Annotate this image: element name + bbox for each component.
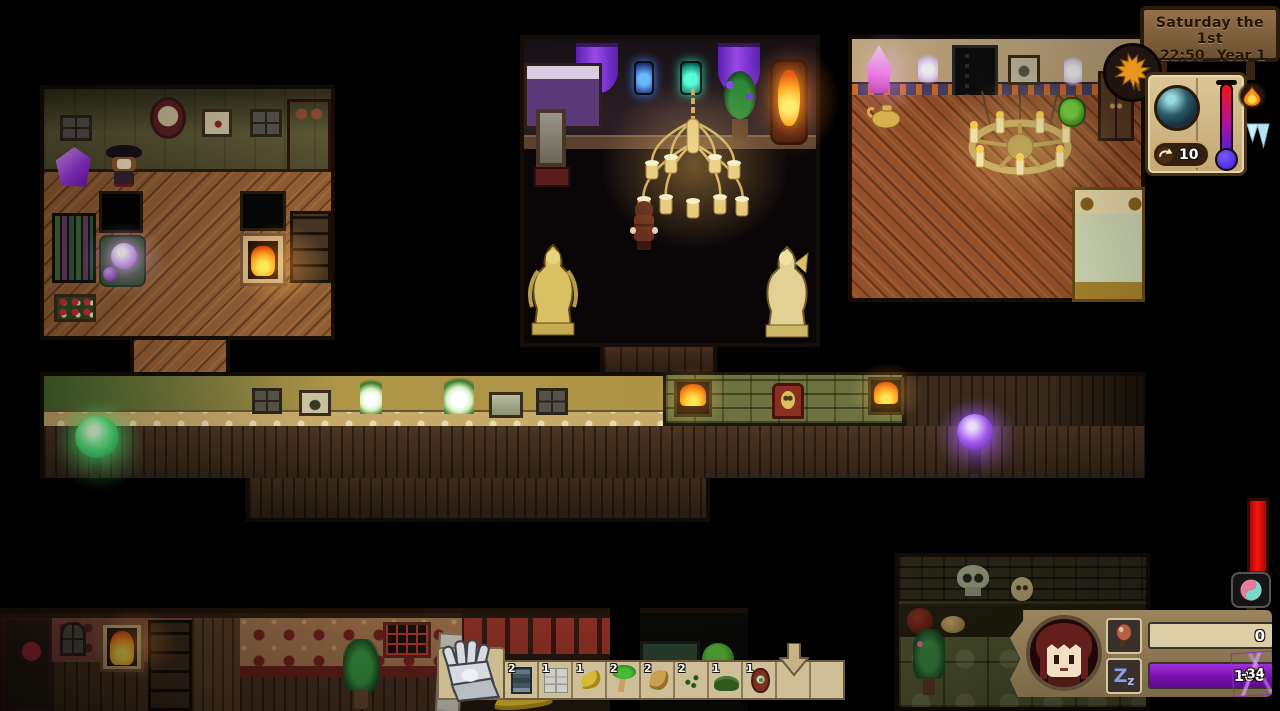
study-window-left xyxy=(60,115,92,141)
purple-orb-lamp[interactable] xyxy=(948,414,1002,478)
fire-flame xyxy=(251,246,275,276)
bird-picture xyxy=(299,390,331,416)
hotbar-slot-8[interactable]: 1 xyxy=(741,662,775,698)
skull-jaw xyxy=(965,587,981,596)
stamina-value: 0 xyxy=(1255,627,1265,645)
player-status-panel: 0 Z z 100 -34 xyxy=(1010,610,1272,697)
game-screen: Saturday the 1st 22:50 Year 1 10 xyxy=(0,0,1280,711)
shrine-mask[interactable] xyxy=(772,383,804,419)
actions-counter-value: 10 xyxy=(1179,147,1198,163)
dark-opening-right xyxy=(240,191,286,231)
date-year: Year 1 xyxy=(1217,48,1266,64)
gauntlet-icon[interactable] xyxy=(438,636,502,702)
study-fireplace[interactable] xyxy=(240,233,286,286)
player-hand-right xyxy=(652,227,658,234)
room-dining xyxy=(848,35,1145,302)
corridor-wall-west xyxy=(40,372,665,426)
player-legs xyxy=(637,241,651,250)
portrait-mouth xyxy=(1060,668,1068,671)
red-lattice-screen xyxy=(383,622,431,658)
cellar-plant-flower xyxy=(917,641,923,647)
stamina-bar: 0 xyxy=(1148,622,1274,649)
room-hall xyxy=(520,35,820,347)
ice-badge xyxy=(1246,122,1270,150)
hotbar-slot-7[interactable]: 1 xyxy=(707,662,741,698)
corridor-window-b xyxy=(536,388,568,415)
night-scene-icon xyxy=(1154,85,1200,131)
icicles-icon xyxy=(1246,122,1270,150)
slot-5-count: 2 xyxy=(644,663,652,674)
hotbar-slot-10[interactable] xyxy=(809,662,843,698)
corridor-frieze xyxy=(44,410,665,426)
npc-dress xyxy=(114,171,134,187)
date-sign: Saturday the 1st 22:50 Year 1 xyxy=(1140,6,1280,62)
green-orb-lamp[interactable] xyxy=(62,416,132,478)
stone-fireplace-2 xyxy=(868,377,904,415)
crystal-ball xyxy=(111,243,137,269)
green-creature[interactable] xyxy=(1058,97,1086,127)
crystal-ball-table[interactable] xyxy=(99,235,146,287)
undo-arrow-icon xyxy=(1156,146,1174,164)
zz-icon-small: z xyxy=(1127,674,1134,688)
thermometer-tube xyxy=(1220,83,1233,155)
gold-bed xyxy=(1072,187,1145,302)
portrait-sidehair-left xyxy=(1040,643,1047,679)
plant-pot xyxy=(354,689,368,709)
shop-fireplace xyxy=(100,622,144,672)
slot-7-count: 1 xyxy=(712,663,720,674)
shop-plank-wall xyxy=(192,618,240,711)
calendar-book[interactable]: 10 xyxy=(1145,72,1247,176)
actions-counter: 10 xyxy=(1152,141,1210,168)
corridor-floor-lower xyxy=(245,478,710,522)
wall-skull xyxy=(951,565,995,599)
landscape-picture xyxy=(489,392,523,418)
spirit-swirl-badge xyxy=(1231,572,1271,608)
stone-fireplace-1 xyxy=(674,379,712,417)
hotbar-slot-6[interactable]: 2 xyxy=(673,662,707,698)
skull-head xyxy=(957,565,989,589)
slot-1-count: 2 xyxy=(508,663,516,674)
wall-sconce-1 xyxy=(360,378,382,414)
slot-2-count: 1 xyxy=(542,663,550,674)
npc-face xyxy=(117,159,131,169)
sleep-icon-box: Z z xyxy=(1106,658,1142,694)
angel-statue-right xyxy=(762,243,812,339)
item-dark-bush xyxy=(714,676,739,691)
hotbar-slot-1[interactable]: 2 xyxy=(505,662,537,698)
spirit-wisp-left xyxy=(918,55,938,87)
lily-flower xyxy=(726,81,734,89)
portrait-eye-left xyxy=(1054,655,1059,664)
thermometer xyxy=(1214,83,1238,171)
zz-icon-big: Z xyxy=(1114,667,1128,686)
shop-drawers xyxy=(148,620,192,711)
hall-mirror xyxy=(536,109,566,167)
slot-6-count: 2 xyxy=(678,663,686,674)
study-drawers[interactable] xyxy=(290,211,331,283)
corridor-wall-stone xyxy=(663,372,905,426)
bottom-shop-west xyxy=(0,608,462,711)
cellar-plant xyxy=(913,629,945,699)
wall-sconce-2 xyxy=(444,378,474,414)
flower-box xyxy=(54,294,96,322)
bookshelf[interactable] xyxy=(52,213,96,283)
portrait-sidehair-right xyxy=(1081,643,1088,679)
date-time: 22:50 xyxy=(1160,48,1205,64)
hotbar-slot-4[interactable]: 2 xyxy=(605,662,639,698)
hotbar-slot-2[interactable]: 1 xyxy=(537,662,571,698)
angel-statue-left xyxy=(528,241,578,337)
stone-fire-1 xyxy=(680,384,706,406)
player-portrait[interactable] xyxy=(1026,615,1102,691)
spirit-wisp-right xyxy=(1064,57,1082,89)
hotbar-slot-3[interactable]: 1 xyxy=(571,662,605,698)
study-doorway[interactable] xyxy=(130,340,230,376)
genie-lamp xyxy=(866,99,904,131)
portrait-shirt xyxy=(1048,677,1080,691)
red-shelf xyxy=(534,167,570,187)
mask-face xyxy=(781,391,795,409)
dining-picture xyxy=(1008,55,1040,85)
slot-8-count: 1 xyxy=(746,663,754,674)
wall-clock xyxy=(150,97,186,139)
purple-orb xyxy=(957,414,993,450)
corridor-window-a xyxy=(252,388,282,414)
date-day-line: Saturday the 1st xyxy=(1144,15,1276,47)
fire-lamp xyxy=(770,59,808,145)
purple-orb-small xyxy=(103,267,117,281)
corridor-wall-east xyxy=(905,372,1145,426)
thermometer-cap xyxy=(1216,80,1237,85)
flame-badge xyxy=(1238,82,1266,110)
flame-icon xyxy=(1242,85,1262,107)
totem-dot xyxy=(759,678,763,682)
health-bar xyxy=(1247,498,1269,574)
plant-leaves xyxy=(343,639,379,691)
study-window-right xyxy=(250,109,282,137)
spirit-swirl-icon xyxy=(1238,577,1264,603)
sleep-penalty-badge: -34 xyxy=(1231,651,1276,698)
portrait-eye-right xyxy=(1069,655,1074,664)
hanging-mask xyxy=(1011,577,1033,601)
game-world[interactable] xyxy=(0,0,1280,711)
portrait-face xyxy=(1046,643,1082,677)
shop-fire xyxy=(110,631,134,665)
cellar-plant-leaves xyxy=(913,629,945,679)
balloon-icon xyxy=(1113,624,1135,648)
player-character[interactable] xyxy=(628,201,660,255)
room-study xyxy=(40,85,335,340)
dark-opening-left xyxy=(99,191,143,233)
shop-plant xyxy=(343,639,379,711)
hotbar-slot-5[interactable]: 2 xyxy=(639,662,673,698)
green-orb xyxy=(75,416,119,458)
npc-witch-girl[interactable] xyxy=(104,145,144,191)
shop-window xyxy=(60,622,86,656)
player-robe xyxy=(634,215,654,241)
slot-3-count: 1 xyxy=(576,663,584,674)
sleep-penalty-value: -34 xyxy=(1241,666,1265,683)
thermometer-bulb xyxy=(1215,148,1238,171)
stamina-icon-box xyxy=(1106,618,1142,654)
drop-here-arrow-icon xyxy=(779,643,809,677)
study-painting xyxy=(202,109,232,137)
fire-lamp-flame xyxy=(778,70,800,126)
player-hand-left xyxy=(630,227,636,234)
shop-bed xyxy=(2,618,52,711)
cellar-plant-pot xyxy=(923,677,935,695)
stone-fire-2 xyxy=(874,382,898,404)
slot-4-count: 2 xyxy=(610,663,618,674)
